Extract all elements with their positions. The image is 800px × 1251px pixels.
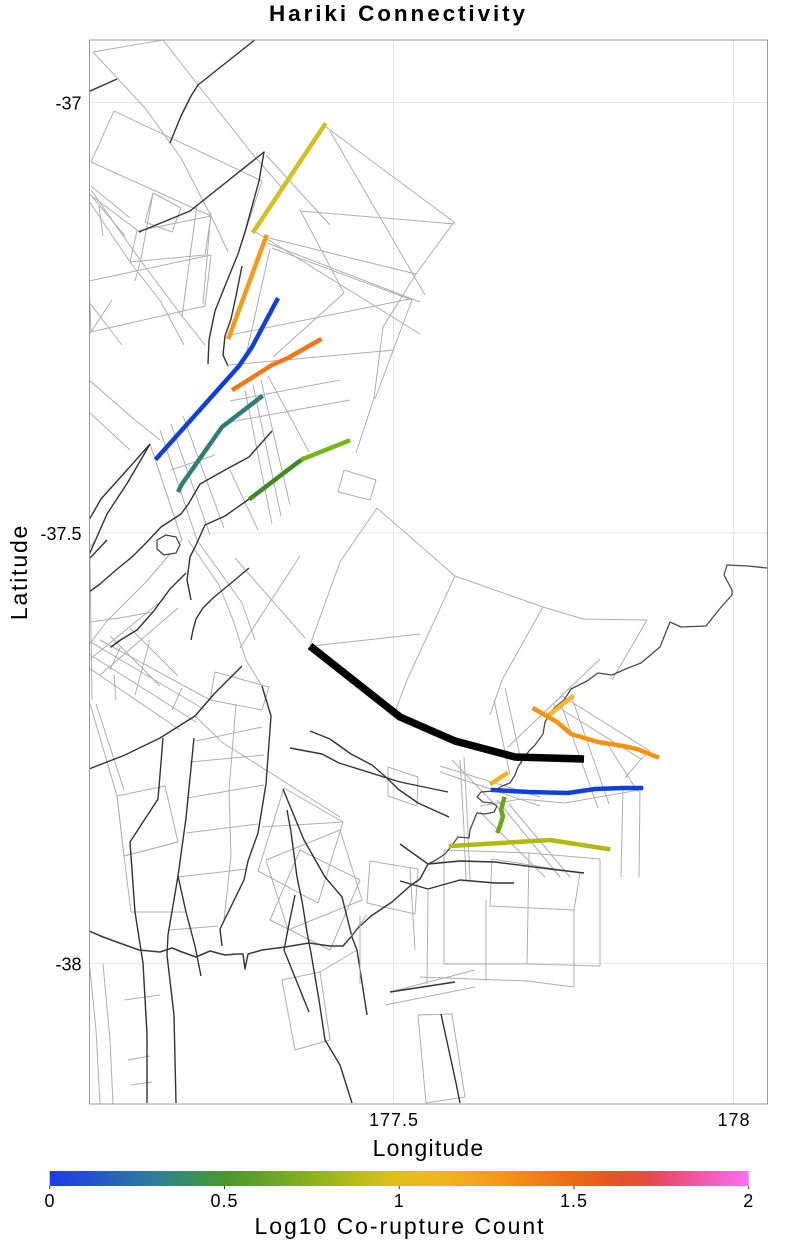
svg-text:177.5: 177.5 [369,1110,419,1130]
svg-text:0.5: 0.5 [210,1191,238,1211]
svg-text:1.5: 1.5 [560,1191,588,1211]
svg-text:Longitude: Longitude [373,1135,485,1161]
svg-text:Hariki Connectivity: Hariki Connectivity [269,1,528,26]
svg-text:1: 1 [394,1191,405,1211]
svg-text:-38: -38 [55,955,81,975]
svg-text:-37: -37 [55,94,81,114]
svg-text:0: 0 [44,1191,55,1211]
svg-text:2: 2 [743,1191,754,1211]
svg-text:Latitude: Latitude [6,524,32,620]
svg-text:178: 178 [717,1110,750,1130]
svg-text:-37.5: -37.5 [40,524,81,544]
svg-text:Log10 Co-rupture Count: Log10 Co-rupture Count [255,1213,546,1239]
